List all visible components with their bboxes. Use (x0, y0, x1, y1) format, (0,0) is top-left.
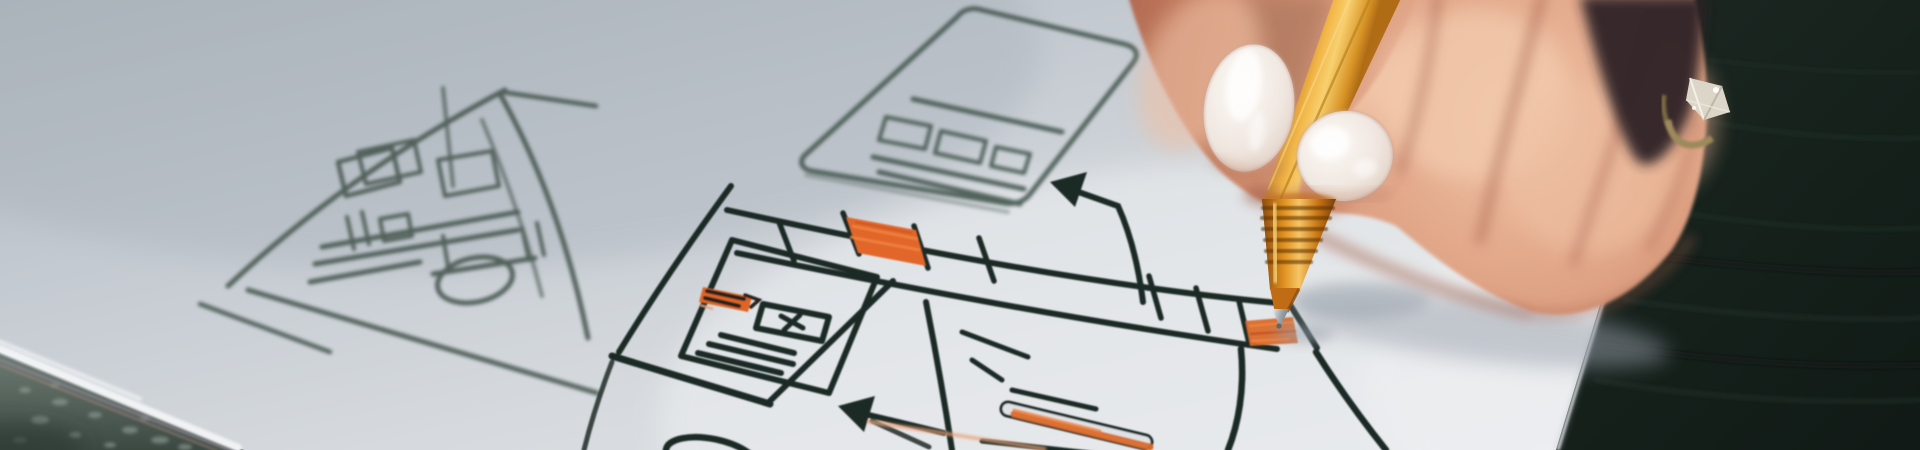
pen-cast-shadow (1274, 325, 1334, 343)
pen-tip-ball (1276, 323, 1281, 328)
wireframe-sketching-photo (0, 0, 1920, 450)
finger-cast-shadow (1290, 282, 1430, 318)
diamond-sparkle (1713, 87, 1719, 93)
grip-shine (1274, 203, 1276, 283)
diamond-sparkle (1692, 106, 1696, 110)
photo-canvas (0, 0, 1920, 450)
